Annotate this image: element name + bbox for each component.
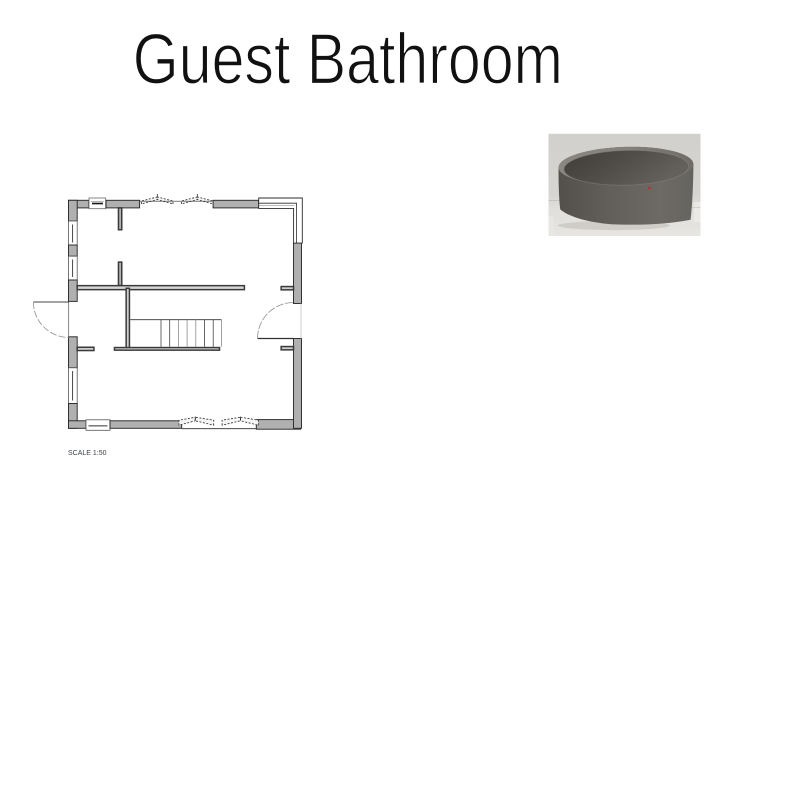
svg-text:SCALE 1:50: SCALE 1:50 <box>68 450 107 457</box>
svg-text:Guest Bathroom: Guest Bathroom <box>133 21 563 100</box>
